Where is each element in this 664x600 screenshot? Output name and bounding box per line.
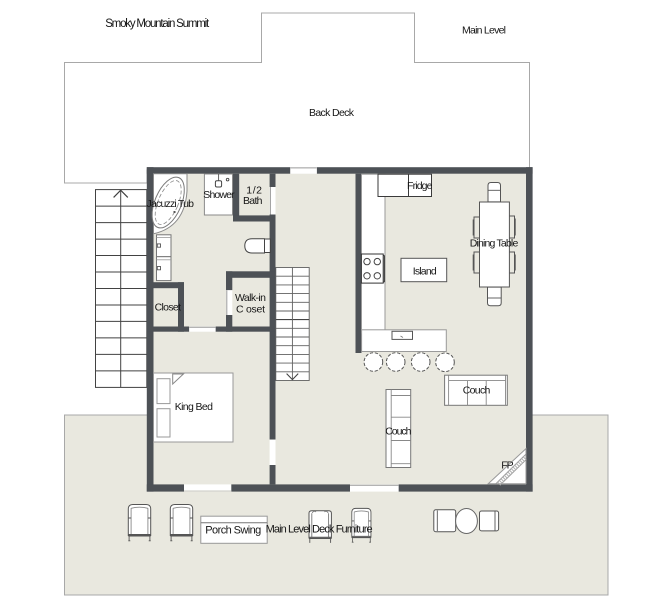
svg-text:Jacuzzi Tub: Jacuzzi Tub: [147, 198, 195, 210]
svg-text:Main Level Deck Furniture: Main Level Deck Furniture: [266, 524, 373, 536]
svg-text:Island: Island: [413, 266, 437, 278]
svg-text:Closet: Closet: [155, 302, 181, 314]
svg-text:Dining Table: Dining Table: [470, 237, 519, 249]
svg-text:Couch: Couch: [385, 425, 411, 437]
svg-text:FP: FP: [501, 460, 513, 472]
svg-text:King Bed: King Bed: [175, 401, 213, 413]
svg-text:Main Level: Main Level: [462, 25, 506, 37]
svg-text:Walk-in: Walk-in: [235, 292, 266, 304]
svg-text:C oset: C oset: [236, 303, 265, 315]
svg-text:Smoky Mountain Summit: Smoky Mountain Summit: [105, 18, 210, 30]
svg-text:Shower: Shower: [203, 189, 235, 201]
svg-text:Porch Swing: Porch Swing: [205, 525, 261, 537]
svg-text:Couch: Couch: [463, 385, 491, 397]
svg-text:Fridge: Fridge: [407, 180, 433, 192]
svg-text:Back Deck: Back Deck: [309, 107, 355, 119]
svg-text:Bath: Bath: [243, 195, 263, 207]
